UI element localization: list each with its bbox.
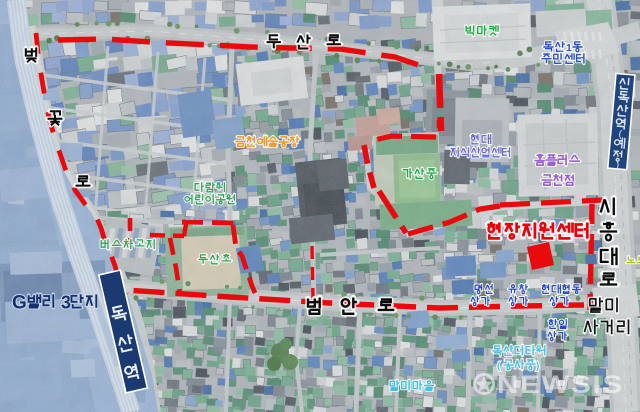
svg-text:NEWSIS: NEWSIS xyxy=(497,370,624,398)
svg-text:G: G xyxy=(12,293,27,314)
svg-text:3: 3 xyxy=(61,293,71,313)
